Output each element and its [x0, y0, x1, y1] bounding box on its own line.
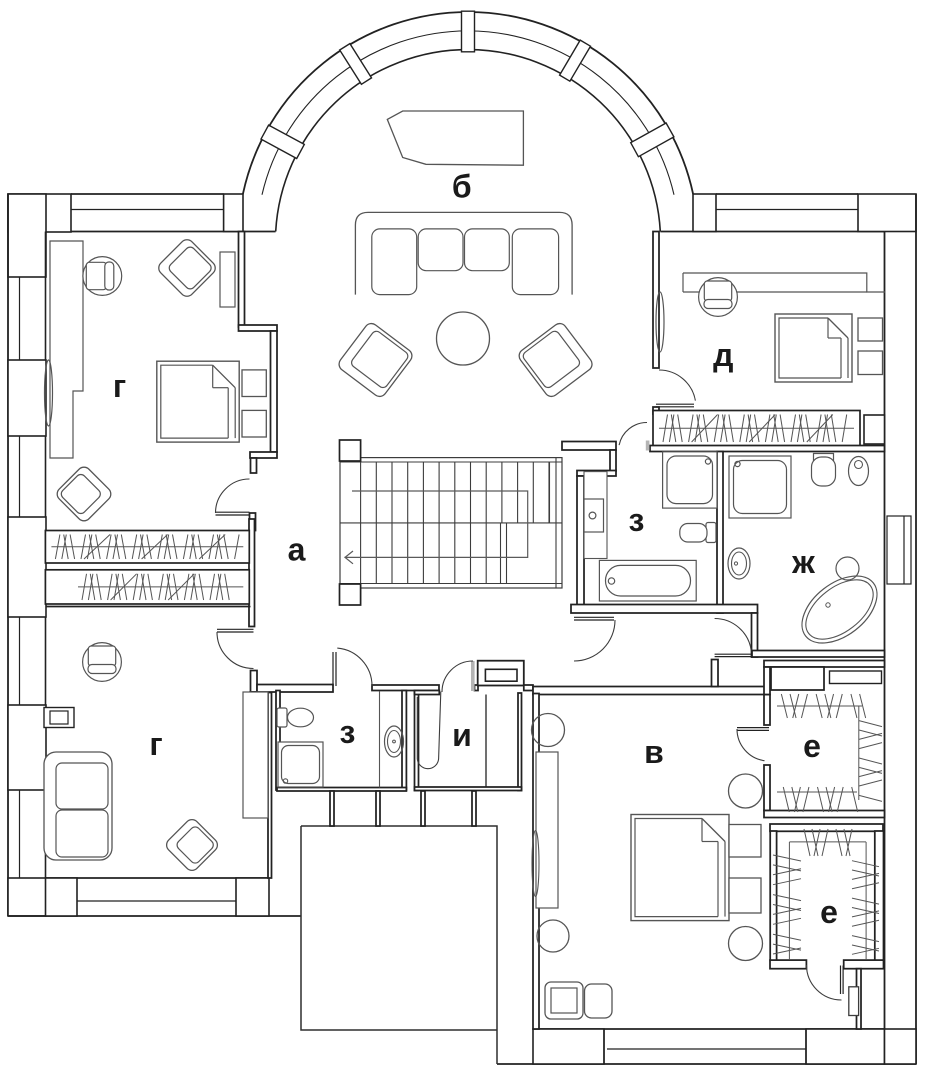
- svg-text:в: в: [644, 734, 664, 770]
- svg-text:г: г: [113, 368, 126, 404]
- svg-text:д: д: [713, 337, 733, 373]
- svg-text:а: а: [288, 532, 306, 568]
- svg-text:з: з: [629, 502, 645, 538]
- svg-text:б: б: [452, 169, 472, 205]
- svg-text:е: е: [803, 728, 821, 764]
- svg-text:ж: ж: [791, 544, 815, 580]
- svg-text:з: з: [340, 714, 356, 750]
- svg-text:и: и: [452, 717, 472, 753]
- svg-text:е: е: [820, 894, 838, 930]
- svg-text:г: г: [149, 726, 162, 762]
